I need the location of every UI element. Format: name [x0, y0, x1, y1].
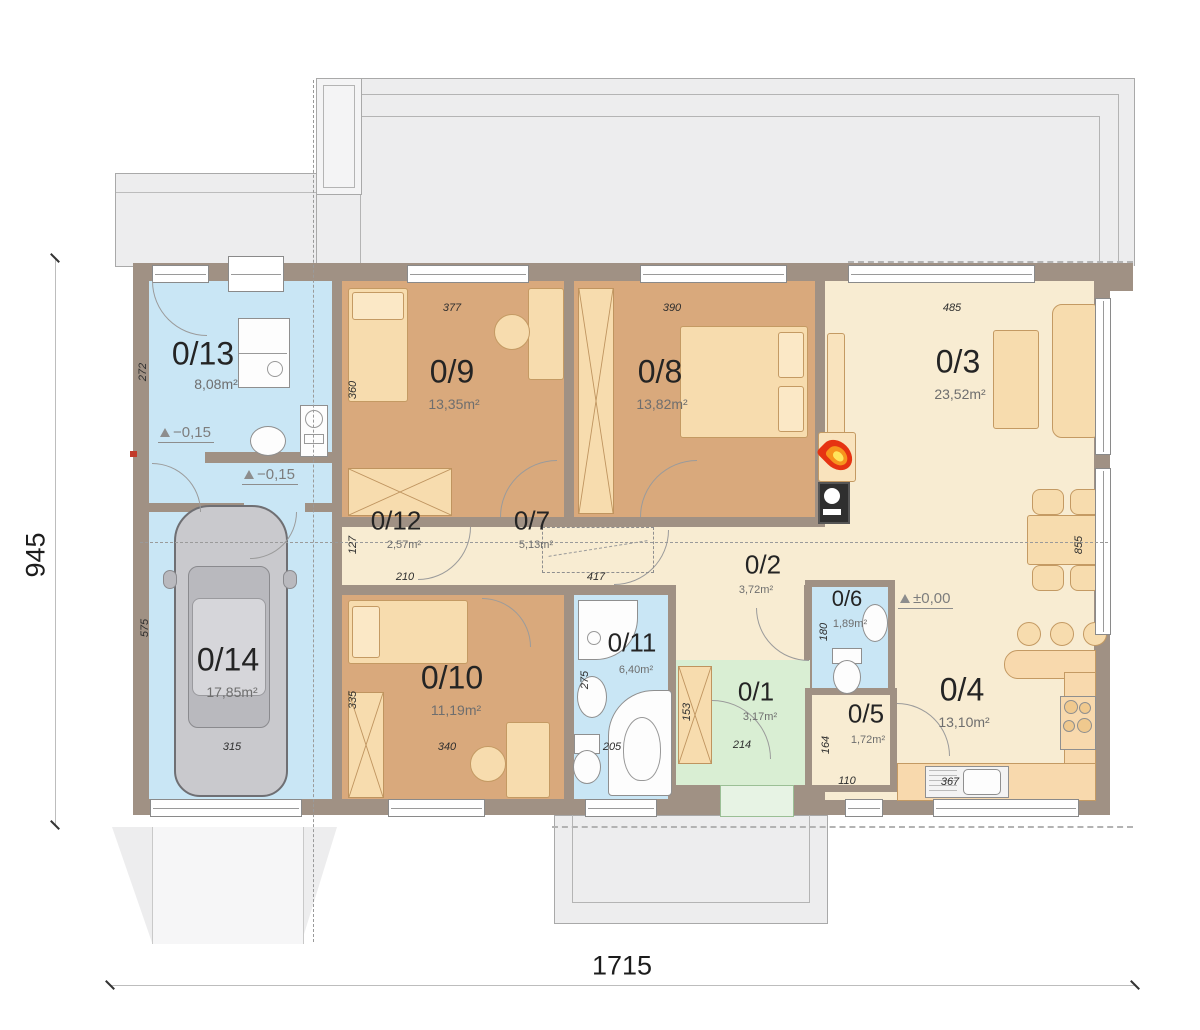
burner-3: [1063, 720, 1075, 732]
window-kitchen: [933, 799, 1079, 817]
room-label-0-5: 0/5: [848, 699, 884, 730]
room-area-0-6: 1,89m²: [833, 618, 867, 630]
section-line-vertical: [313, 80, 314, 942]
bar-stool-2: [1050, 622, 1074, 646]
toilet-0-6-bowl: [833, 660, 861, 694]
roofline-dashed-terrace: [848, 261, 1133, 263]
bar-stool-1: [1017, 622, 1041, 646]
window-right-lower: [1095, 468, 1111, 635]
room-area-0-11: 6,40m²: [619, 664, 653, 676]
terrace-door-0-3: [848, 265, 1035, 283]
dim-367: 367: [941, 776, 959, 788]
dim-180: 180: [818, 623, 830, 641]
window-0-9: [407, 265, 529, 283]
chimney-inner: [323, 85, 355, 188]
room-area-0-14: 17,85m²: [206, 684, 257, 700]
dim-275: 275: [579, 671, 591, 689]
room-label-0-14: 0/14: [197, 642, 259, 679]
entry-porch-step: [572, 815, 810, 903]
pillow-0-10: [352, 606, 380, 658]
overall-width-label: 1715: [592, 951, 652, 982]
room-label-0-9: 0/9: [430, 354, 474, 391]
pillow-0-8-a: [778, 332, 804, 378]
section-line-horizontal: [140, 542, 1108, 543]
wardrobe-0-8: [578, 288, 614, 514]
roofline-dashed-bottom: [552, 826, 1133, 828]
window-0-13-top: [228, 256, 284, 292]
solid-fuel-stove-icon: [818, 482, 850, 524]
room-label-0-2: 0/2: [745, 550, 781, 581]
window-0-5: [845, 799, 883, 817]
toilet-0-11-bowl: [573, 750, 601, 784]
dim-390: 390: [663, 302, 681, 314]
tv-cabinet-0-3: [827, 333, 845, 437]
room-area-0-4: 13,10m²: [938, 714, 989, 730]
room-label-0-1: 0/1: [738, 677, 774, 708]
room-area-0-10: 11,19m²: [431, 702, 481, 718]
room-area-0-5: 1,72m²: [851, 734, 885, 746]
room-area-0-7: 5,13m²: [519, 539, 553, 551]
garage-door: [150, 799, 302, 817]
coffee-table-0-3: [993, 330, 1039, 429]
window-0-10: [388, 799, 485, 817]
room-area-0-9: 13,35m²: [428, 396, 479, 412]
level-marker-vestibule: −0,15: [242, 466, 298, 485]
room-label-0-6: 0/6: [832, 586, 863, 612]
level-triangle-icon: [900, 594, 910, 603]
room-label-0-11: 0/11: [608, 628, 657, 659]
dim-153: 153: [681, 703, 693, 721]
dim-855: 855: [1073, 536, 1085, 554]
driveway-inner: [152, 827, 304, 944]
room-label-0-7: 0/7: [514, 506, 550, 537]
overall-height-label: 945: [21, 532, 52, 577]
room-area-0-12: 2,57m²: [387, 539, 421, 551]
level-marker-0-13: −0,15: [158, 424, 214, 443]
dim-360: 360: [347, 381, 359, 399]
dim-485: 485: [943, 302, 961, 314]
level-marker-main: ±0,00: [898, 590, 953, 609]
chair-0-9: [494, 314, 530, 350]
chair-0-10: [470, 746, 506, 782]
room-label-0-3: 0/3: [936, 344, 980, 381]
dim-127: 127: [347, 536, 359, 554]
room-label-0-13: 0/13: [172, 336, 234, 373]
door-0-11-porch: [585, 799, 657, 817]
dining-chair-1: [1032, 489, 1064, 515]
room-area-0-13: 8,08m²: [194, 376, 238, 392]
dim-340: 340: [438, 741, 456, 753]
dim-315: 315: [223, 741, 241, 753]
level-triangle-icon: [160, 428, 170, 437]
dimension-line-bottom: [110, 985, 1135, 986]
burner-1: [1064, 700, 1078, 714]
room-label-0-10: 0/10: [421, 660, 483, 697]
window-0-8: [640, 265, 787, 283]
desk-0-9: [528, 288, 564, 380]
room-label-0-4: 0/4: [940, 672, 984, 709]
room-area-0-2: 3,72m²: [739, 584, 773, 596]
room-label-0-12: 0/12: [371, 506, 422, 537]
attic-hatch-outline: [542, 527, 654, 573]
car-mirror-right: [283, 570, 297, 589]
floor-plan: 0/13 8,08m² 0/9 13,35m² 0/8 13,82m² 0/3 …: [0, 0, 1200, 1030]
dim-272: 272: [137, 363, 149, 381]
dim-377: 377: [443, 302, 461, 314]
entry-door-0-1: [720, 785, 794, 817]
car-mirror-left: [163, 570, 177, 589]
pillow-0-8-b: [778, 386, 804, 432]
room-area-0-3: 23,52m²: [934, 386, 985, 402]
burner-2: [1079, 702, 1091, 714]
utility-sink-icon: [250, 426, 286, 456]
laundry-stack-icon: [300, 405, 328, 457]
burner-4: [1077, 718, 1092, 733]
room-area-0-1: 3,17m²: [743, 711, 777, 723]
dim-417: 417: [587, 571, 605, 583]
dim-110: 110: [838, 775, 856, 787]
dim-164: 164: [820, 736, 832, 754]
room-label-0-8: 0/8: [638, 354, 682, 391]
dim-214: 214: [733, 739, 751, 751]
dim-575: 575: [139, 619, 151, 637]
fireplace-flame-icon: [824, 438, 850, 472]
desk-0-10: [506, 722, 550, 798]
section-mark: [130, 451, 137, 457]
window-right-upper: [1095, 298, 1111, 455]
pillow-0-9: [352, 292, 404, 320]
dimension-line-left: [55, 258, 56, 825]
washing-machine-icon: [238, 318, 290, 388]
dim-335: 335: [347, 691, 359, 709]
terrace-edge-inner: [360, 116, 1100, 266]
room-area-0-8: 13,82m²: [636, 396, 687, 412]
wall-vestibule-garage-b: [305, 503, 332, 512]
level-triangle-icon: [244, 470, 254, 479]
dining-chair-3: [1032, 565, 1064, 591]
kitchen-sink-basin: [963, 769, 1001, 795]
dim-210: 210: [396, 571, 414, 583]
dim-205: 205: [603, 741, 621, 753]
